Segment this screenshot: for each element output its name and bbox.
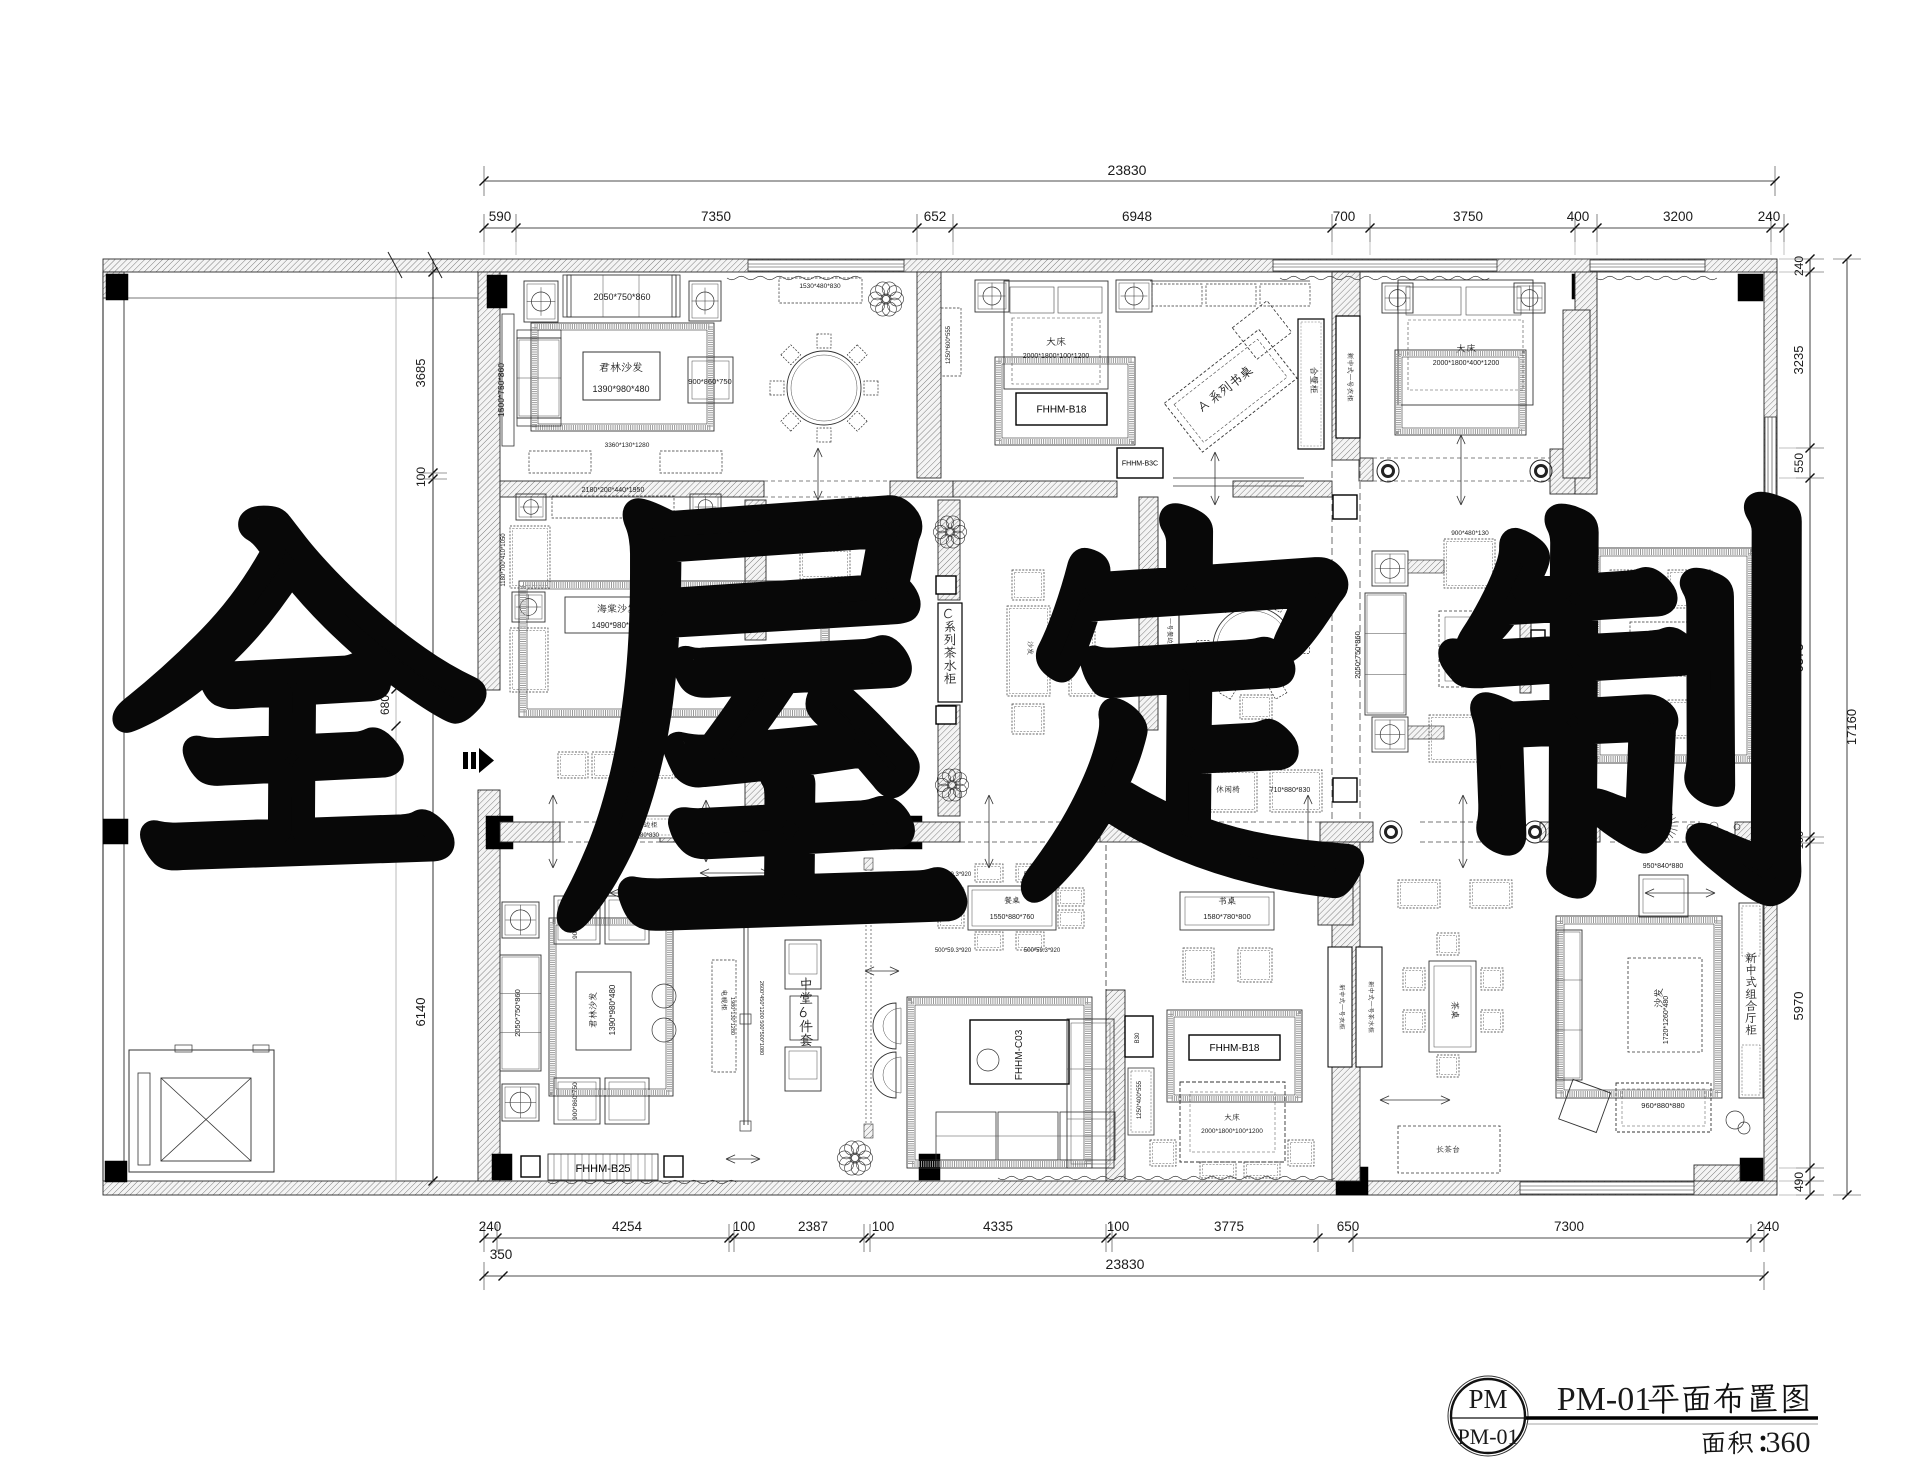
- svg-text:900*480*130: 900*480*130: [1451, 530, 1489, 537]
- svg-text:PM-01: PM-01: [1557, 1381, 1651, 1418]
- svg-text:7350: 7350: [701, 209, 731, 224]
- svg-text:3235: 3235: [1791, 346, 1806, 375]
- svg-text:650: 650: [1337, 1219, 1360, 1234]
- svg-text:2000*1800*400*1200: 2000*1800*400*1200: [1433, 360, 1500, 367]
- svg-text:23830: 23830: [1106, 1256, 1145, 1272]
- svg-text:500*59.3*920: 500*59.3*920: [1024, 948, 1061, 954]
- svg-text:2180*200*440*1950: 2180*200*440*1950: [582, 487, 645, 494]
- svg-text:B30: B30: [1135, 1032, 1141, 1043]
- svg-text:4254: 4254: [612, 1219, 643, 1234]
- svg-text:700: 700: [1333, 209, 1356, 224]
- svg-text:4335: 4335: [983, 1219, 1013, 1234]
- svg-text:900*860*750: 900*860*750: [688, 377, 731, 386]
- svg-text:FHHM-B18: FHHM-B18: [1036, 405, 1086, 416]
- svg-text:2000*1800*100*1200: 2000*1800*100*1200: [1201, 1128, 1263, 1135]
- svg-text:1980*130*1280: 1980*130*1280: [729, 997, 735, 1035]
- svg-text:240: 240: [1792, 256, 1806, 276]
- svg-text:3750: 3750: [1453, 209, 1483, 224]
- svg-text:PM: PM: [1468, 1384, 1507, 1414]
- svg-text:100: 100: [414, 467, 428, 487]
- svg-text:3200: 3200: [1663, 209, 1693, 224]
- svg-text:1250*400*555: 1250*400*555: [1137, 1080, 1143, 1119]
- svg-text:2050*750*860: 2050*750*860: [1353, 631, 1362, 679]
- svg-text:6948: 6948: [1122, 209, 1152, 224]
- svg-text:490: 490: [1792, 1172, 1806, 1192]
- svg-text:400: 400: [1567, 209, 1590, 224]
- svg-text:1550*880*760: 1550*880*760: [990, 914, 1034, 921]
- svg-text:FHHM-C03: FHHM-C03: [1014, 1029, 1025, 1080]
- svg-text:3685: 3685: [413, 359, 428, 388]
- svg-text:FHHM-B3C: FHHM-B3C: [1122, 460, 1158, 467]
- svg-text:360: 360: [1766, 1426, 1811, 1459]
- svg-text:PM-01: PM-01: [1457, 1424, 1518, 1449]
- svg-text:100: 100: [872, 1219, 895, 1234]
- svg-text:2387: 2387: [798, 1219, 828, 1234]
- svg-text:500*59.3*920: 500*59.3*920: [935, 948, 972, 954]
- svg-text:23830: 23830: [1108, 162, 1147, 178]
- svg-text:652: 652: [924, 209, 947, 224]
- svg-text:1720*1260*480: 1720*1260*480: [1663, 996, 1670, 1044]
- svg-text:17160: 17160: [1844, 709, 1859, 745]
- svg-text:6140: 6140: [413, 998, 428, 1027]
- svg-text:2050*750*860: 2050*750*860: [593, 292, 650, 302]
- svg-text:100: 100: [1107, 1219, 1130, 1234]
- svg-text:1500*750*860: 1500*750*860: [496, 363, 506, 417]
- svg-text:350: 350: [490, 1247, 513, 1262]
- svg-text:100: 100: [733, 1219, 756, 1234]
- svg-text:1390*980*480: 1390*980*480: [592, 384, 649, 394]
- svg-text:240: 240: [479, 1219, 502, 1234]
- svg-text:240: 240: [1758, 209, 1781, 224]
- svg-text:1250*600*555: 1250*600*555: [946, 325, 952, 364]
- svg-text:960*880*880: 960*880*880: [1641, 1101, 1684, 1110]
- svg-text:950*840*880: 950*840*880: [1643, 863, 1684, 870]
- svg-text:550: 550: [1792, 453, 1806, 473]
- svg-text:240: 240: [1757, 1219, 1780, 1234]
- svg-text:1180*700*410*1050: 1180*700*410*1050: [501, 533, 507, 587]
- svg-text:2600*450*1200 500*500*1080: 2600*450*1200 500*500*1080: [758, 981, 764, 1055]
- svg-text:FHHM-B25: FHHM-B25: [575, 1163, 630, 1175]
- svg-text:7300: 7300: [1554, 1219, 1584, 1234]
- svg-text:5970: 5970: [1791, 992, 1806, 1021]
- svg-text:FHHM-B18: FHHM-B18: [1209, 1043, 1259, 1054]
- svg-text:3775: 3775: [1214, 1219, 1244, 1234]
- svg-text:710*880*830: 710*880*830: [1270, 787, 1311, 794]
- svg-text:2050*750*860: 2050*750*860: [513, 989, 522, 1037]
- svg-text:3360*130*1280: 3360*130*1280: [605, 442, 650, 449]
- svg-text:1390*980*480: 1390*980*480: [608, 984, 617, 1035]
- svg-text:900*860*750: 900*860*750: [572, 1082, 579, 1120]
- svg-text:590: 590: [489, 209, 512, 224]
- svg-text:1530*480*830: 1530*480*830: [799, 283, 841, 290]
- svg-text:1580*780*800: 1580*780*800: [1203, 912, 1251, 921]
